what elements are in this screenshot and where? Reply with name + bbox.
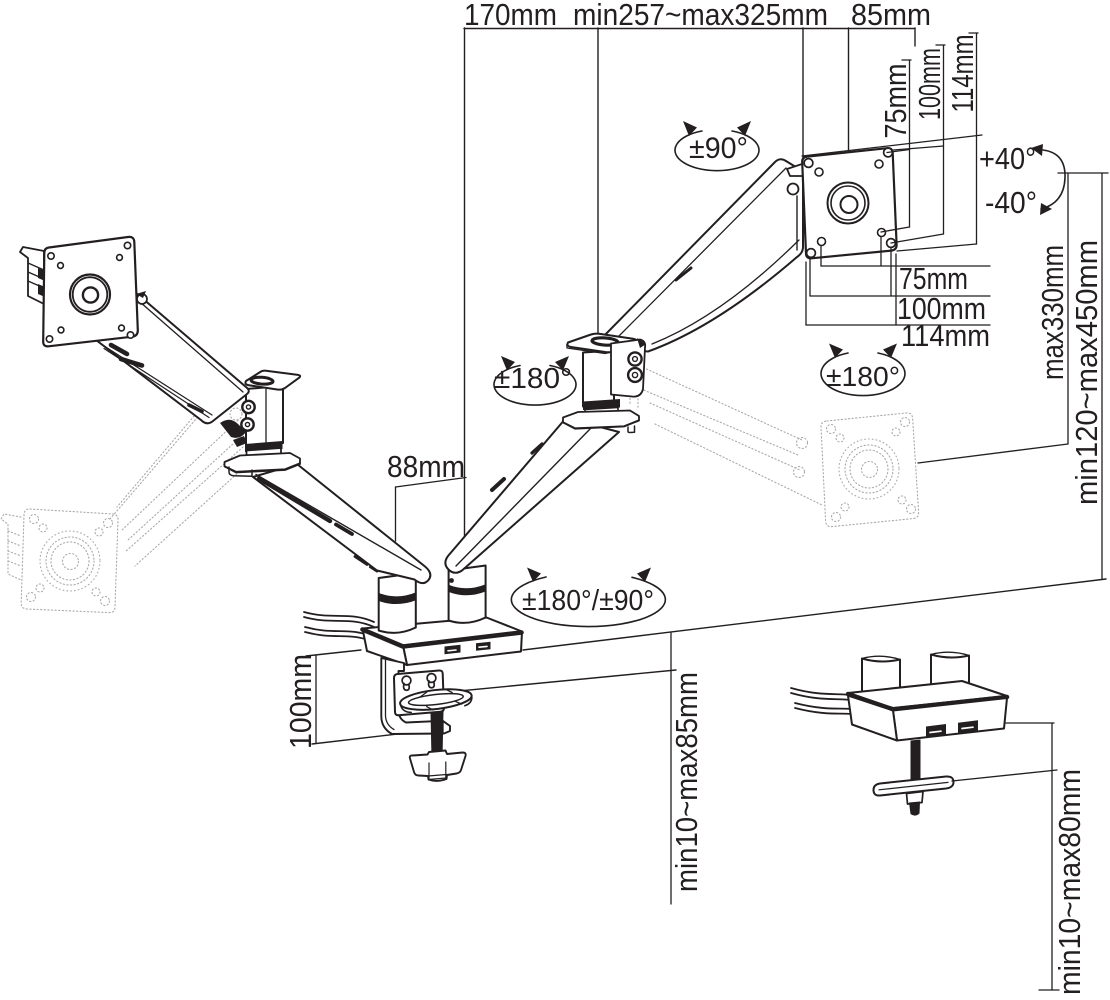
svg-text:114mm: 114mm: [901, 318, 990, 353]
svg-text:±90°: ±90°: [689, 132, 748, 165]
svg-text:max330mm: max330mm: [1035, 245, 1070, 380]
svg-text:+40°: +40°: [979, 141, 1036, 176]
svg-text:±180°/±90°: ±180°/±90°: [522, 585, 654, 617]
svg-text:min120~max450mm: min120~max450mm: [1069, 240, 1104, 505]
svg-text:75mm: 75mm: [878, 64, 913, 139]
svg-text:±180°: ±180°: [826, 361, 900, 392]
svg-text:-40°: -40°: [985, 185, 1037, 220]
svg-text:100mm: 100mm: [912, 48, 947, 120]
svg-text:170mm: 170mm: [464, 0, 557, 32]
svg-text:100mm: 100mm: [283, 654, 318, 749]
svg-text:min10~max85mm: min10~max85mm: [669, 672, 704, 892]
svg-text:±180°: ±180°: [494, 363, 572, 395]
svg-text:88mm: 88mm: [387, 449, 465, 484]
svg-text:min257~max325mm: min257~max325mm: [573, 0, 828, 32]
svg-text:114mm: 114mm: [945, 35, 980, 113]
svg-text:85mm: 85mm: [851, 0, 931, 32]
svg-text:min10~max80mm: min10~max80mm: [1052, 769, 1087, 995]
